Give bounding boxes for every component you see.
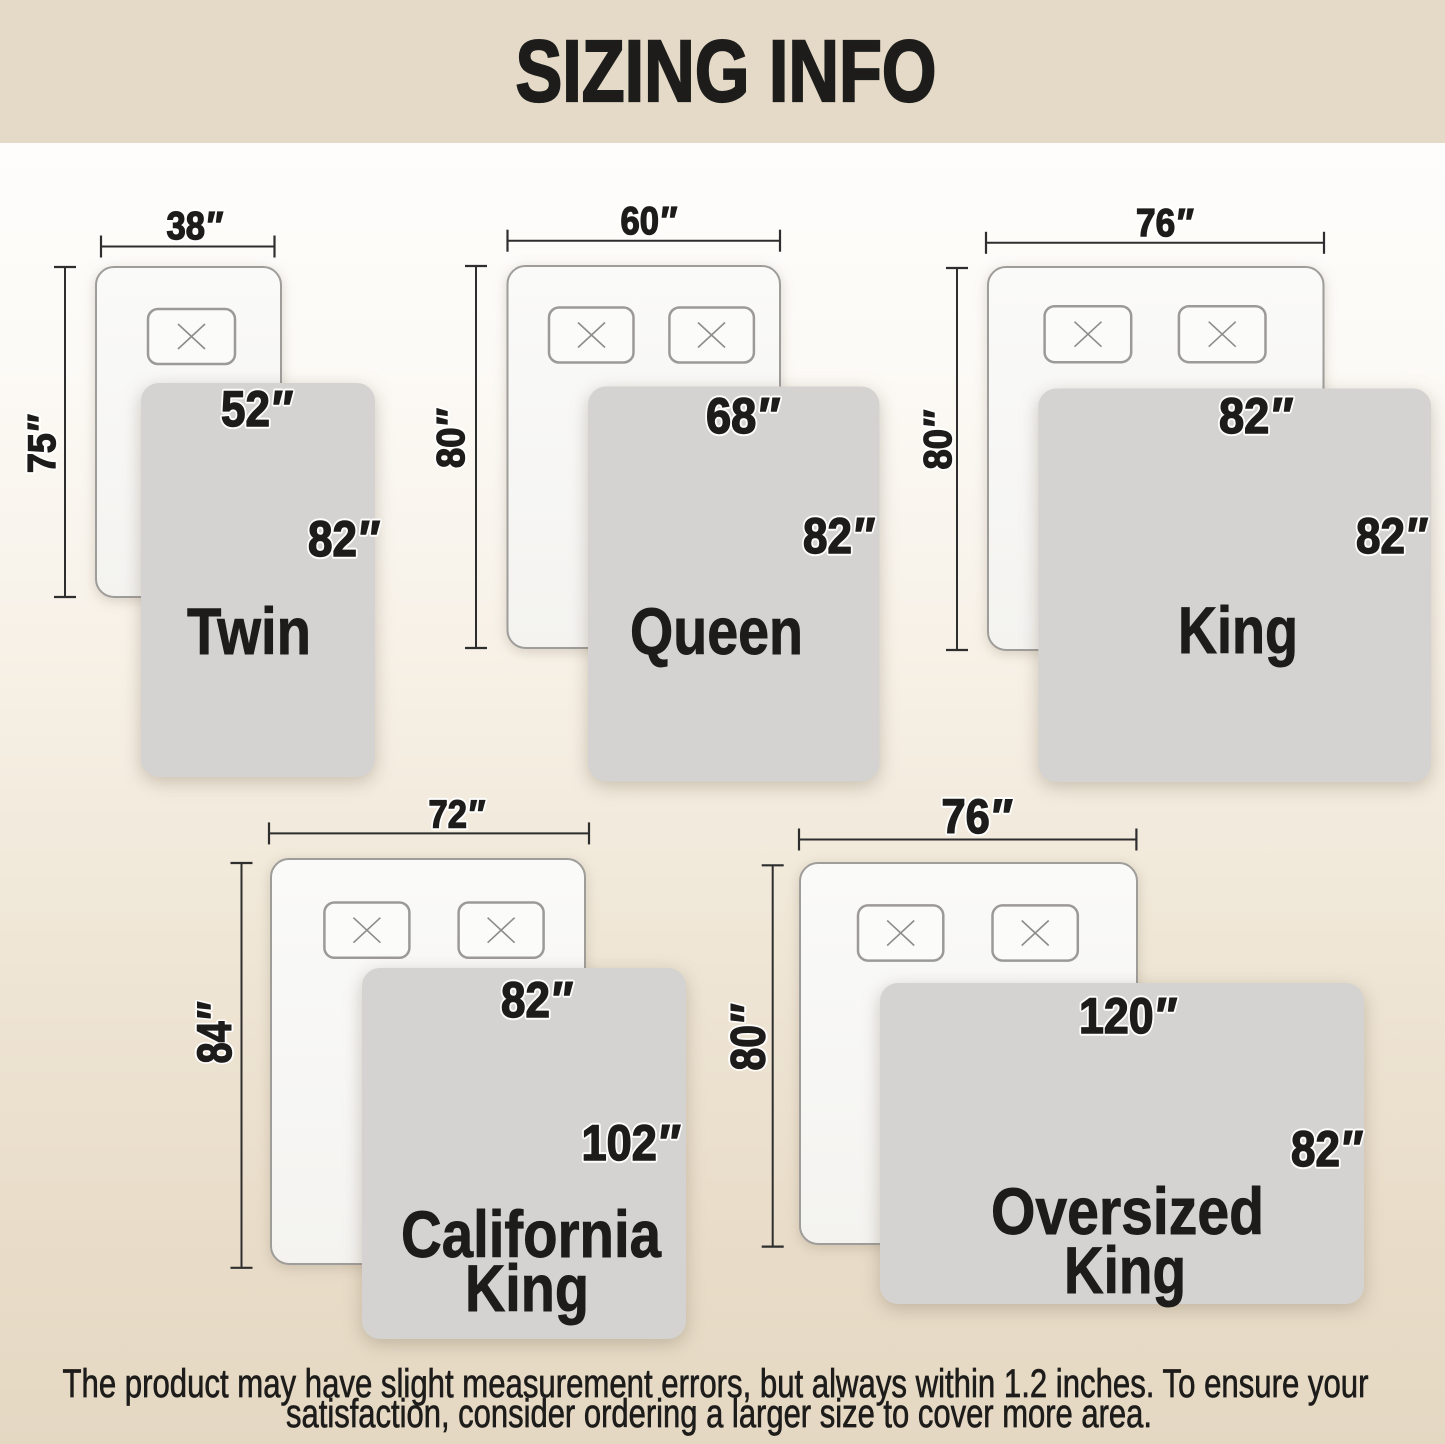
svg-text:Queen: Queen — [630, 594, 803, 668]
svg-text:72″: 72″ — [429, 794, 486, 837]
svg-text:82″: 82″ — [308, 511, 380, 567]
svg-text:SIZING INFO: SIZING INFO — [516, 23, 937, 120]
svg-text:82″: 82″ — [1356, 508, 1428, 564]
svg-text:75″: 75″ — [21, 414, 64, 473]
svg-text:King: King — [1178, 593, 1298, 667]
svg-text:38″: 38″ — [167, 205, 224, 248]
svg-text:82″: 82″ — [803, 508, 875, 564]
svg-text:Twin: Twin — [187, 594, 311, 668]
svg-text:80″: 80″ — [430, 408, 473, 468]
svg-text:King: King — [465, 1251, 589, 1325]
svg-text:82″: 82″ — [1291, 1121, 1363, 1177]
svg-text:68″: 68″ — [706, 388, 780, 444]
svg-text:76″: 76″ — [942, 791, 1013, 844]
svg-text:102″: 102″ — [582, 1115, 681, 1171]
svg-text:80″: 80″ — [722, 1004, 775, 1071]
svg-text:76″: 76″ — [1136, 202, 1194, 245]
svg-text:52″: 52″ — [221, 381, 293, 437]
svg-text:60″: 60″ — [621, 200, 678, 243]
svg-text:80″: 80″ — [917, 409, 960, 469]
svg-text:84″: 84″ — [189, 1002, 242, 1064]
svg-text:satisfaction, consider orderin: satisfaction, consider ordering a larger… — [286, 1392, 1152, 1436]
svg-text:82″: 82″ — [1219, 388, 1293, 444]
svg-text:82″: 82″ — [501, 972, 573, 1028]
svg-text:King: King — [1064, 1233, 1186, 1307]
svg-text:120″: 120″ — [1079, 988, 1177, 1044]
